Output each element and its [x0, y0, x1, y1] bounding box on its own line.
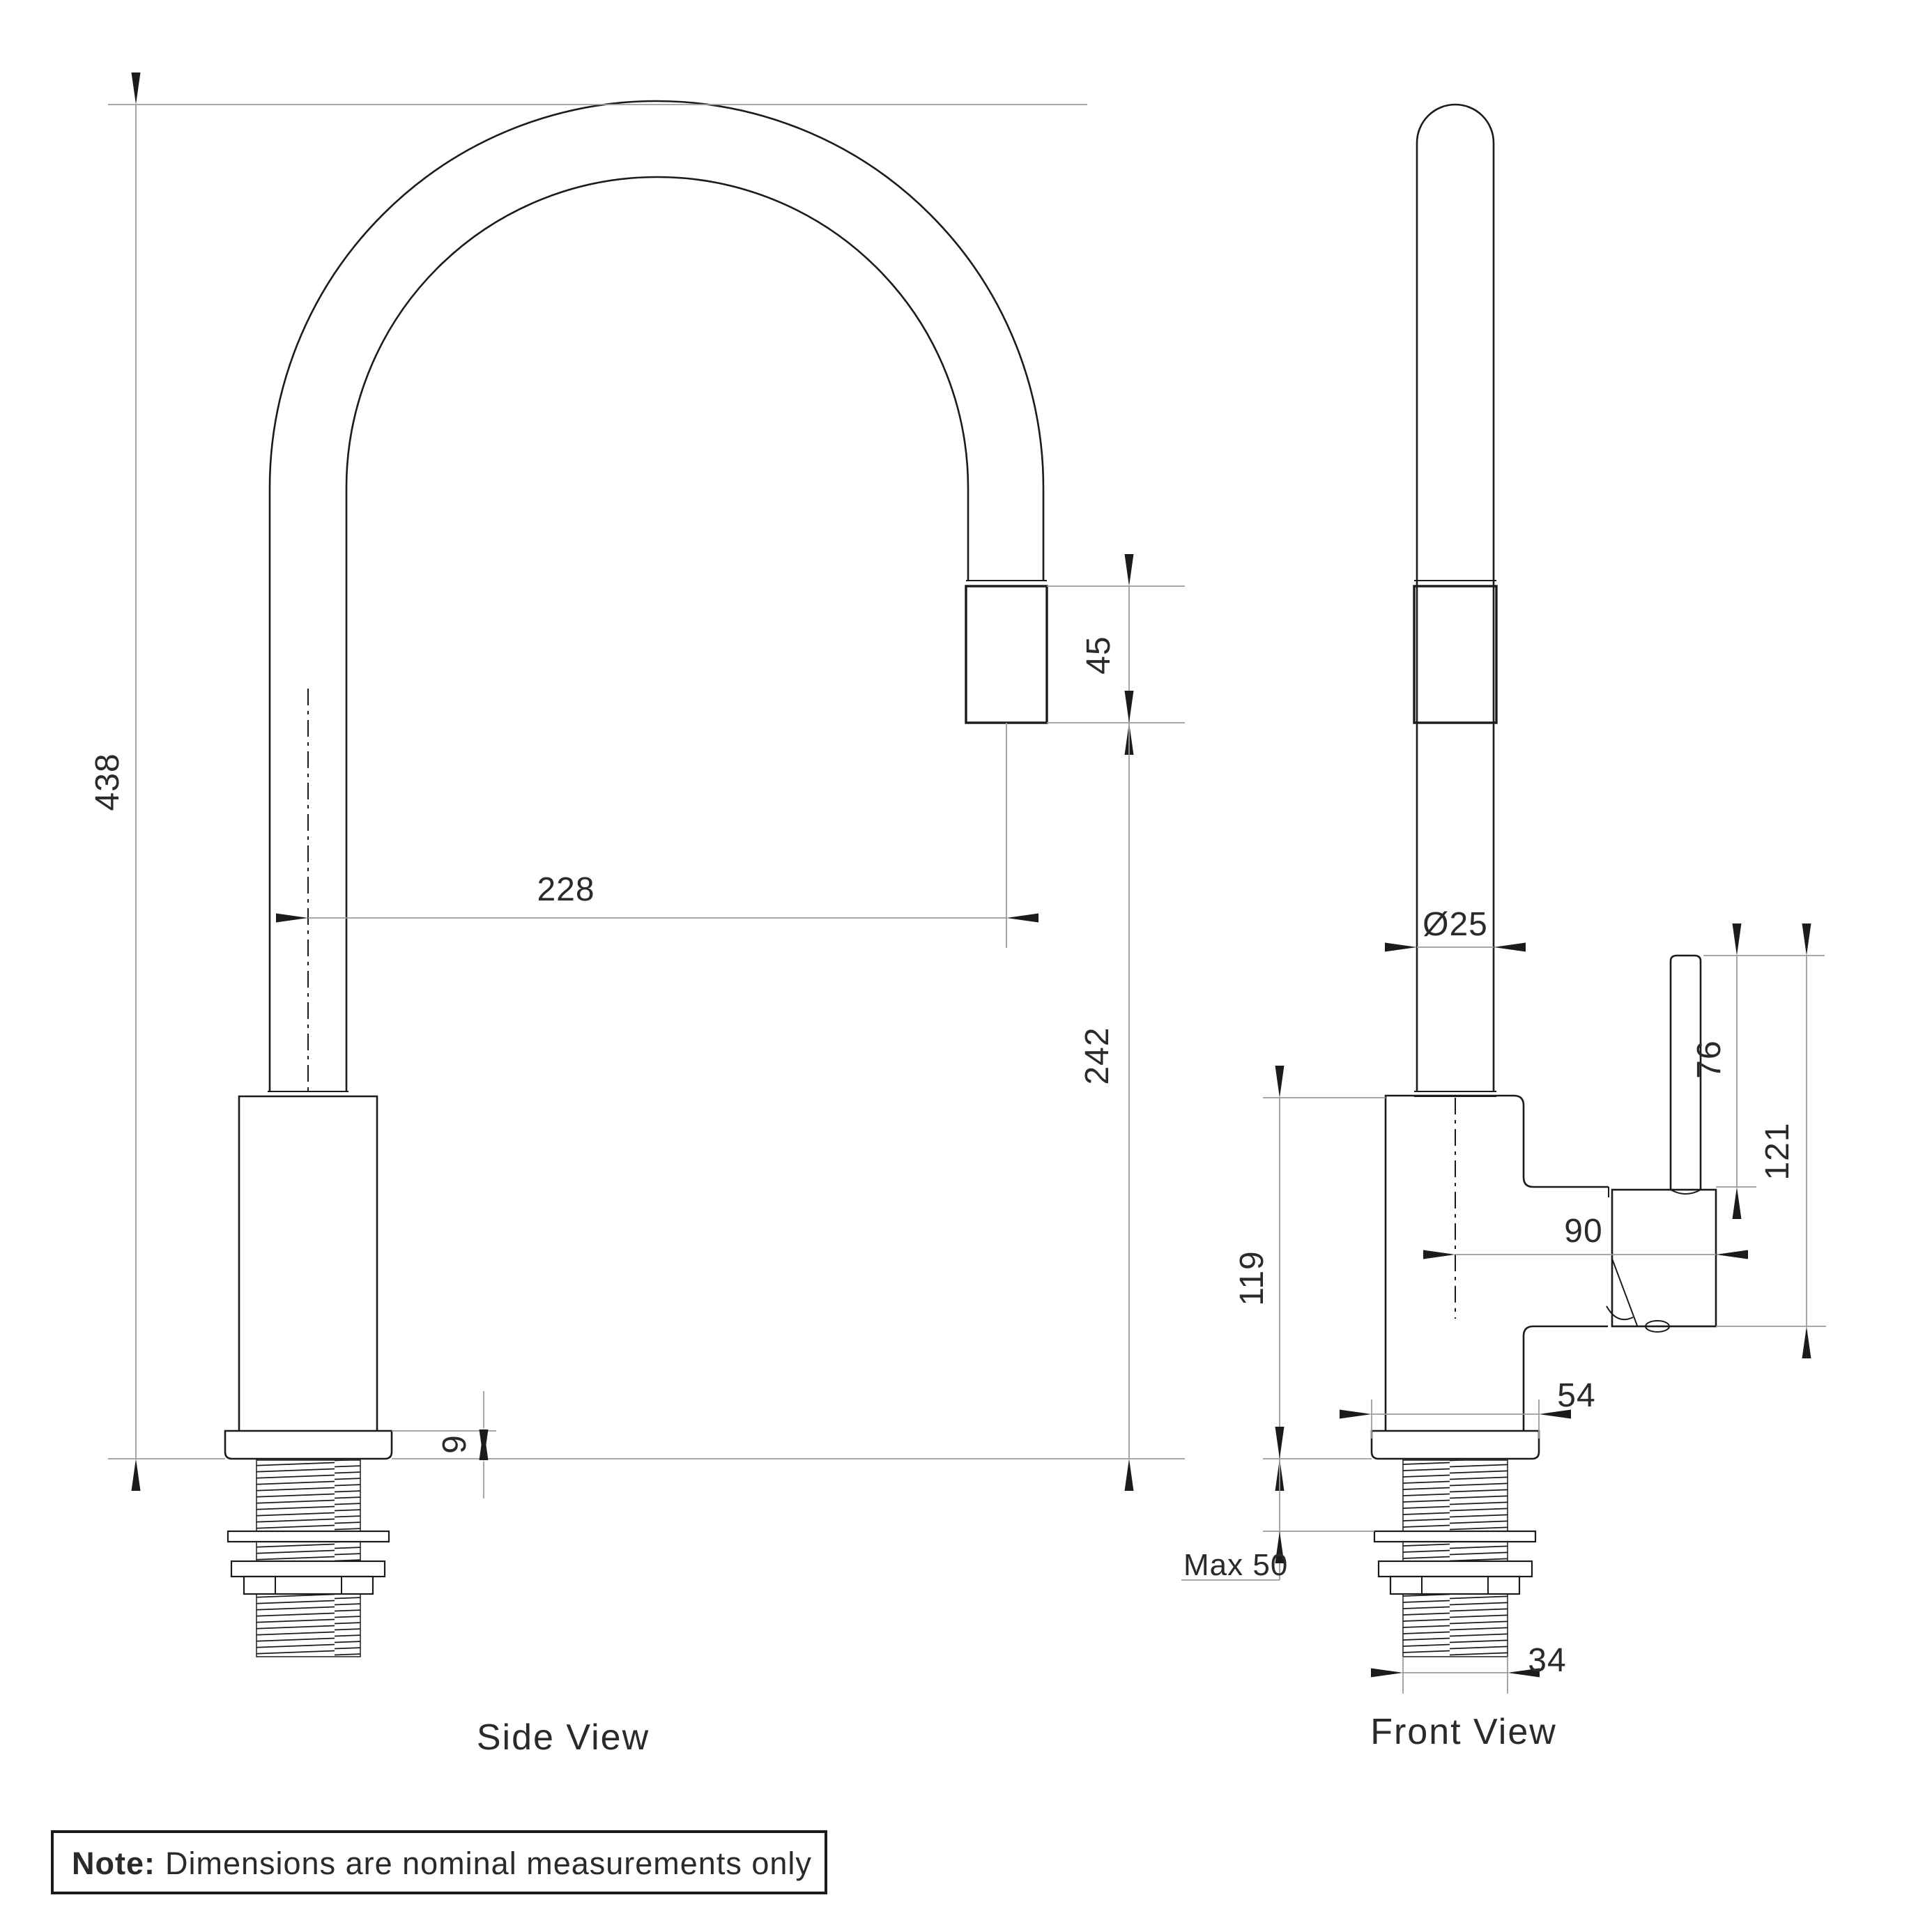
handle-pivot-arc	[1607, 1306, 1633, 1319]
note-box: Note:Dimensions are nominal measurements…	[52, 1832, 826, 1893]
dim-dia25-label: Ø25	[1423, 906, 1488, 943]
spout-column	[1417, 105, 1494, 1091]
front-shank	[1374, 1460, 1535, 1657]
base-plate	[225, 1431, 392, 1459]
faucet-dimension-drawing: 438 228 45 242 9 Side View	[0, 0, 1932, 1932]
spout-outer-curve	[270, 101, 1043, 1091]
locknut-body	[244, 1577, 373, 1594]
body-outline	[239, 1096, 377, 1431]
dim-121-label: 121	[1759, 1122, 1796, 1180]
base-plate	[1372, 1431, 1539, 1459]
side-dimension-lines	[136, 105, 1129, 1498]
dim-54-label: 54	[1557, 1377, 1595, 1414]
mid-thread	[256, 1542, 360, 1561]
note-label-text: Dimensions are nominal measurements only	[165, 1846, 812, 1881]
technical-drawing-sheet: 438 228 45 242 9 Side View	[0, 0, 1932, 1932]
dim-76-label: 76	[1691, 1040, 1728, 1078]
side-view: 438 228 45 242 9 Side View	[89, 101, 1185, 1758]
base-width-extensions	[1372, 1400, 1539, 1439]
spout-nozzle	[1414, 586, 1496, 723]
front-view: Ø25 119 Max 50 76 121 90 54 34 Front Vie…	[1181, 105, 1826, 1752]
front-view-title: Front View	[1370, 1712, 1557, 1752]
shank-width-extensions	[1403, 1657, 1508, 1694]
washer	[228, 1531, 389, 1542]
dim-90-label: 90	[1564, 1213, 1602, 1250]
mid-thread	[1403, 1542, 1508, 1561]
washer	[1374, 1531, 1535, 1542]
dim-438-label: 438	[89, 753, 126, 811]
handle-shaft-line	[1612, 1259, 1637, 1326]
dim-119-label: 119	[1234, 1250, 1271, 1306]
side-view-title: Side View	[477, 1717, 650, 1758]
dim-34-label: 34	[1528, 1642, 1566, 1679]
dim-max50-label: Max 50	[1183, 1548, 1288, 1582]
spout-inner-curve	[346, 177, 968, 1091]
dim-45-label: 45	[1080, 636, 1117, 674]
side-spout-gooseneck	[268, 101, 1047, 1096]
locknut-body	[1390, 1577, 1519, 1594]
spout-nozzle	[966, 586, 1047, 723]
side-body	[225, 1096, 392, 1459]
note-label-bold: Note:	[72, 1846, 155, 1881]
locknut-flange	[231, 1561, 385, 1577]
side-shank	[228, 1460, 389, 1657]
lower-thread	[256, 1594, 360, 1657]
dim-242-label: 242	[1079, 1027, 1116, 1084]
upper-thread	[256, 1460, 360, 1531]
lower-thread	[1403, 1594, 1508, 1657]
dim-228-label: 228	[537, 871, 595, 908]
upper-thread	[1403, 1460, 1508, 1531]
locknut-flange	[1379, 1561, 1532, 1577]
dim-9-label: 9	[436, 1434, 473, 1454]
handle-boss	[1612, 1190, 1716, 1326]
front-body	[1372, 956, 1716, 1459]
note-text: Note:Dimensions are nominal measurements…	[72, 1846, 812, 1881]
